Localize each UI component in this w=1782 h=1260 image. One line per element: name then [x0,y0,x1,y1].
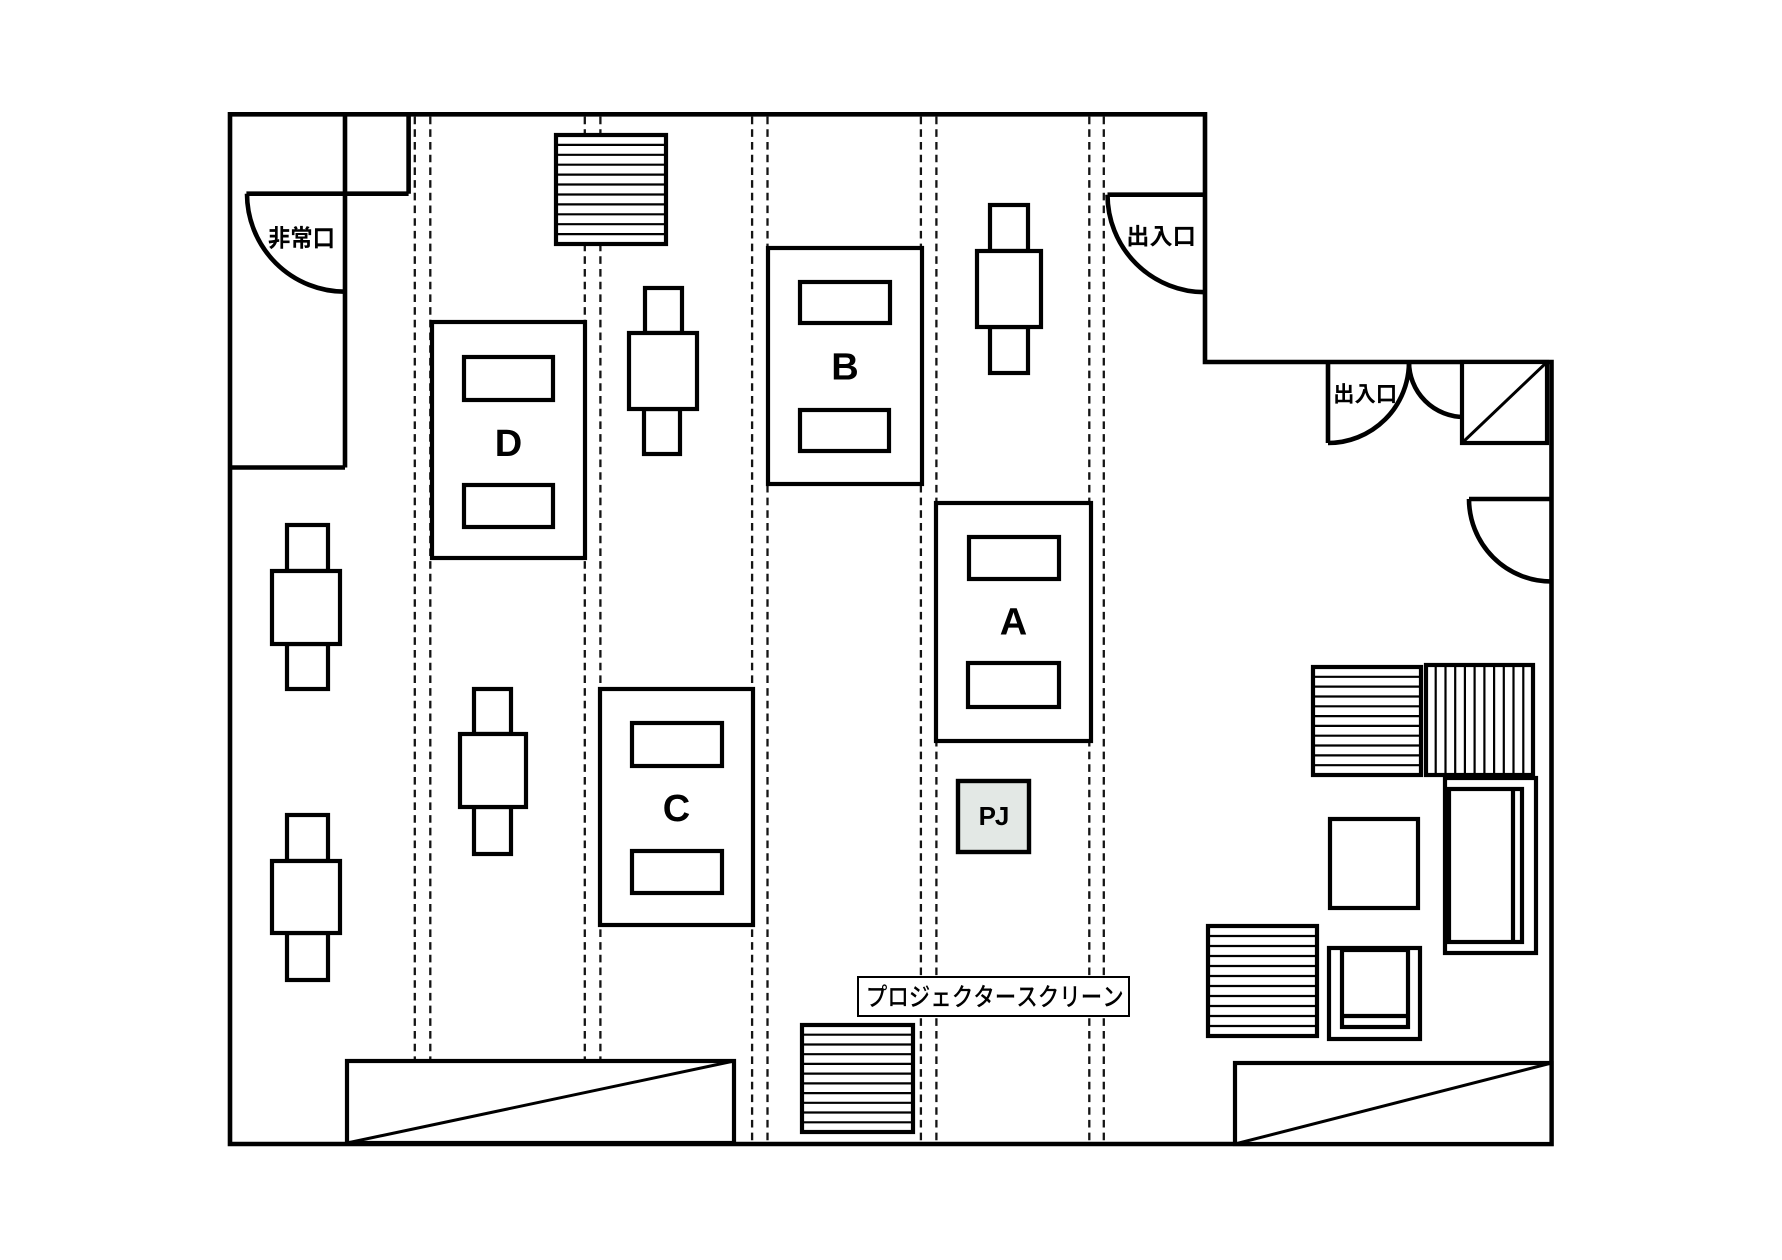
svg-text:D: D [495,423,522,465]
svg-text:B: B [831,347,858,389]
svg-text:A: A [1000,602,1027,644]
svg-text:C: C [663,788,690,830]
svg-text:PJ: PJ [979,801,1009,831]
